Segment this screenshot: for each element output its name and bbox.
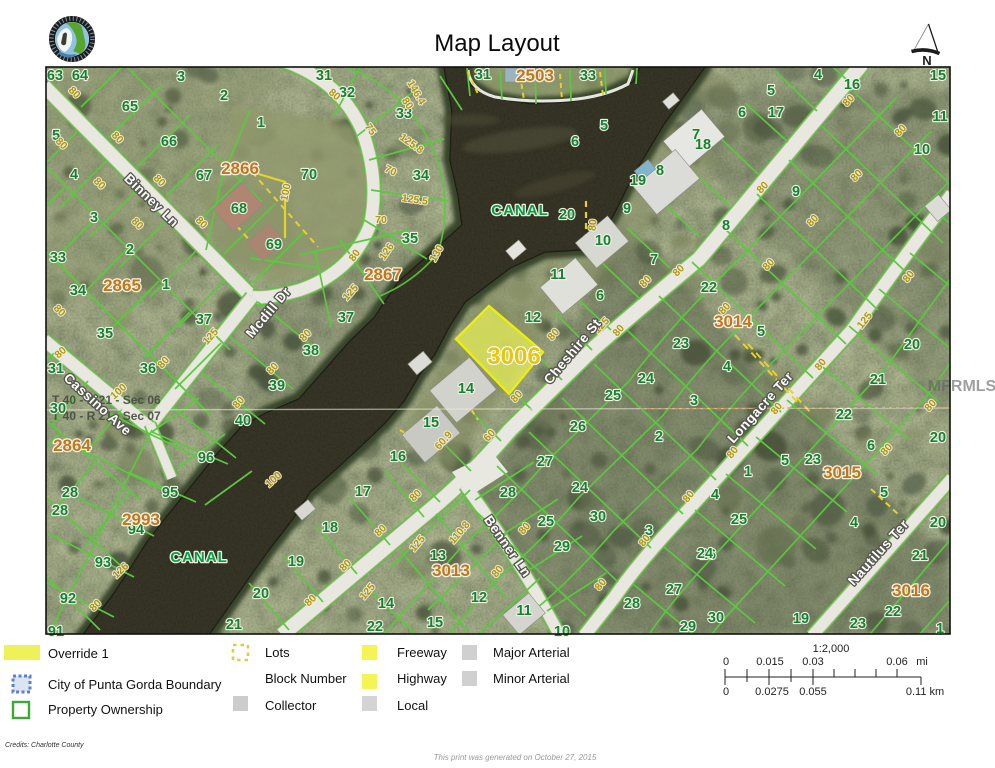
svg-text:3016: 3016: [892, 581, 930, 600]
svg-text:MFRMLS: MFRMLS: [928, 378, 995, 395]
svg-text:2866: 2866: [221, 159, 259, 178]
svg-text:19: 19: [793, 611, 809, 627]
svg-text:5: 5: [757, 324, 765, 340]
svg-text:10: 10: [554, 624, 570, 640]
svg-text:4: 4: [711, 487, 719, 503]
svg-text:6: 6: [571, 134, 579, 150]
svg-text:15: 15: [423, 415, 439, 431]
svg-text:69: 69: [266, 237, 282, 253]
svg-text:24: 24: [572, 480, 588, 496]
svg-text:20: 20: [253, 586, 269, 602]
svg-text:20: 20: [930, 515, 946, 531]
svg-text:65: 65: [122, 99, 138, 115]
svg-text:11: 11: [516, 603, 531, 619]
svg-text:34: 34: [70, 283, 86, 299]
svg-text:31: 31: [475, 67, 491, 83]
svg-text:25: 25: [538, 514, 554, 530]
svg-text:28: 28: [62, 485, 78, 501]
svg-text:68: 68: [231, 201, 247, 217]
svg-text:38: 38: [303, 343, 319, 359]
svg-text:14: 14: [378, 596, 394, 612]
svg-text:6: 6: [867, 438, 875, 454]
svg-text:63: 63: [47, 68, 63, 84]
svg-text:0: 0: [723, 656, 729, 668]
svg-text:Highway: Highway: [397, 671, 447, 686]
svg-text:24: 24: [697, 546, 713, 562]
svg-text:22: 22: [367, 619, 383, 635]
svg-text:37: 37: [338, 310, 354, 326]
svg-text:14: 14: [458, 381, 474, 397]
svg-text:29: 29: [554, 539, 570, 555]
svg-text:0.055: 0.055: [799, 686, 827, 698]
svg-text:40: 40: [235, 413, 251, 429]
svg-text:25: 25: [731, 512, 747, 528]
svg-text:96: 96: [198, 450, 214, 466]
svg-text:Local: Local: [397, 698, 428, 713]
svg-text:11: 11: [550, 267, 565, 283]
svg-text:30: 30: [708, 610, 724, 626]
svg-text:6: 6: [738, 105, 746, 121]
svg-text:Lots: Lots: [265, 645, 290, 660]
svg-text:28: 28: [52, 503, 68, 519]
svg-text:Property Ownership: Property Ownership: [48, 702, 163, 717]
svg-text:20: 20: [904, 337, 920, 353]
svg-text:Major Arterial: Major Arterial: [493, 645, 570, 660]
svg-text:20: 20: [559, 207, 575, 223]
svg-text:34: 34: [413, 168, 429, 184]
svg-text:70: 70: [375, 214, 387, 226]
svg-text:23: 23: [805, 452, 821, 468]
svg-text:mi: mi: [916, 656, 928, 668]
svg-text:1: 1: [744, 464, 752, 480]
svg-text:30: 30: [50, 401, 66, 417]
svg-text:22: 22: [836, 407, 852, 423]
svg-text:3006: 3006: [487, 343, 540, 370]
svg-text:17: 17: [355, 484, 371, 500]
svg-text:10: 10: [595, 233, 611, 249]
svg-text:2503: 2503: [516, 66, 554, 85]
svg-text:7: 7: [650, 252, 658, 268]
svg-text:18: 18: [695, 137, 711, 153]
svg-text:4: 4: [70, 167, 78, 183]
svg-text:1: 1: [162, 277, 170, 293]
svg-text:Collector: Collector: [265, 698, 317, 713]
svg-text:20: 20: [930, 430, 946, 446]
svg-text:93: 93: [95, 555, 111, 571]
svg-text:8: 8: [722, 218, 730, 234]
svg-text:22: 22: [701, 280, 717, 296]
svg-text:28: 28: [500, 485, 516, 501]
svg-text:37: 37: [196, 312, 212, 328]
svg-text:2867: 2867: [364, 265, 402, 284]
svg-text:17: 17: [768, 105, 784, 121]
svg-text:31: 31: [48, 361, 64, 377]
svg-text:12: 12: [525, 310, 541, 326]
svg-text:2: 2: [220, 88, 228, 104]
svg-text:10: 10: [914, 142, 930, 158]
svg-text:4: 4: [850, 515, 858, 531]
svg-text:70: 70: [301, 167, 317, 183]
svg-text:16: 16: [390, 449, 406, 465]
svg-text:21: 21: [226, 617, 242, 633]
svg-text:28: 28: [624, 596, 640, 612]
svg-text:0.06: 0.06: [886, 656, 907, 668]
svg-text:15: 15: [930, 68, 946, 84]
svg-text:0: 0: [723, 686, 729, 698]
svg-text:3013: 3013: [432, 561, 470, 580]
svg-text:23: 23: [673, 336, 689, 352]
svg-text:0.03: 0.03: [802, 656, 823, 668]
svg-text:23: 23: [850, 616, 866, 632]
svg-text:25: 25: [605, 388, 621, 404]
svg-text:27: 27: [666, 582, 682, 598]
svg-text:19: 19: [288, 554, 304, 570]
svg-text:80: 80: [587, 219, 600, 232]
svg-text:31: 31: [316, 68, 332, 84]
svg-text:5: 5: [880, 485, 888, 501]
svg-text:0.11 km: 0.11 km: [906, 686, 944, 698]
svg-text:3: 3: [90, 210, 98, 226]
svg-text:35: 35: [97, 326, 113, 342]
svg-text:64: 64: [72, 68, 88, 84]
svg-text:3014: 3014: [714, 312, 752, 331]
svg-text:67: 67: [196, 168, 212, 184]
svg-text:Freeway: Freeway: [397, 645, 447, 660]
svg-text:27: 27: [537, 454, 553, 470]
svg-text:1:2,000: 1:2,000: [813, 643, 850, 655]
svg-text:95: 95: [162, 485, 178, 501]
svg-text:City of Punta Gorda Boundary: City of Punta Gorda Boundary: [48, 677, 222, 692]
svg-text:N: N: [922, 53, 931, 68]
svg-text:11: 11: [932, 109, 947, 125]
svg-text:30: 30: [590, 509, 606, 525]
svg-text:0.015: 0.015: [756, 656, 784, 668]
svg-text:66: 66: [161, 134, 177, 150]
svg-text:24: 24: [638, 371, 654, 387]
svg-text:21: 21: [870, 372, 886, 388]
svg-text:3015: 3015: [823, 463, 861, 482]
svg-text:35: 35: [402, 231, 418, 247]
svg-text:5: 5: [767, 83, 775, 99]
svg-text:92: 92: [60, 591, 76, 607]
svg-text:Override 1: Override 1: [48, 646, 109, 661]
svg-text:39: 39: [269, 378, 285, 394]
svg-text:CANAL: CANAL: [170, 549, 228, 566]
svg-text:3: 3: [177, 69, 185, 85]
svg-text:18: 18: [322, 520, 338, 536]
svg-text:2993: 2993: [122, 510, 160, 529]
svg-text:33: 33: [50, 250, 66, 266]
svg-text:33: 33: [580, 68, 596, 84]
svg-text:This print was generated on Oc: This print was generated on October 27, …: [434, 753, 597, 762]
svg-text:0.0275: 0.0275: [755, 686, 789, 698]
svg-text:9: 9: [623, 201, 631, 217]
svg-text:2: 2: [655, 429, 663, 445]
svg-text:19: 19: [630, 173, 646, 189]
svg-text:6: 6: [596, 288, 604, 304]
svg-text:91: 91: [48, 624, 64, 640]
svg-text:29: 29: [680, 619, 696, 635]
svg-text:1: 1: [257, 115, 265, 131]
svg-text:Credits: Charlotte County: Credits: Charlotte County: [5, 742, 84, 749]
svg-text:2: 2: [126, 242, 134, 258]
svg-text:21: 21: [912, 548, 928, 564]
svg-text:Map Layout: Map Layout: [434, 30, 560, 57]
svg-text:22: 22: [885, 604, 901, 620]
svg-text:2864: 2864: [53, 436, 91, 455]
svg-text:15: 15: [427, 615, 443, 631]
svg-text:12: 12: [471, 590, 487, 606]
svg-text:9: 9: [792, 184, 800, 200]
svg-text:26: 26: [570, 419, 586, 435]
svg-text:Block Number: Block Number: [265, 671, 347, 686]
svg-text:4: 4: [723, 359, 731, 375]
svg-text:8: 8: [656, 163, 664, 179]
svg-text:5: 5: [781, 453, 789, 469]
svg-text:Minor Arterial: Minor Arterial: [493, 671, 570, 686]
svg-text:3: 3: [690, 393, 698, 409]
svg-text:4: 4: [814, 67, 822, 83]
svg-text:36: 36: [140, 361, 156, 377]
svg-text:CANAL: CANAL: [491, 202, 549, 219]
svg-text:5: 5: [600, 118, 608, 134]
svg-text:2865: 2865: [103, 276, 141, 295]
svg-text:16: 16: [844, 77, 860, 93]
